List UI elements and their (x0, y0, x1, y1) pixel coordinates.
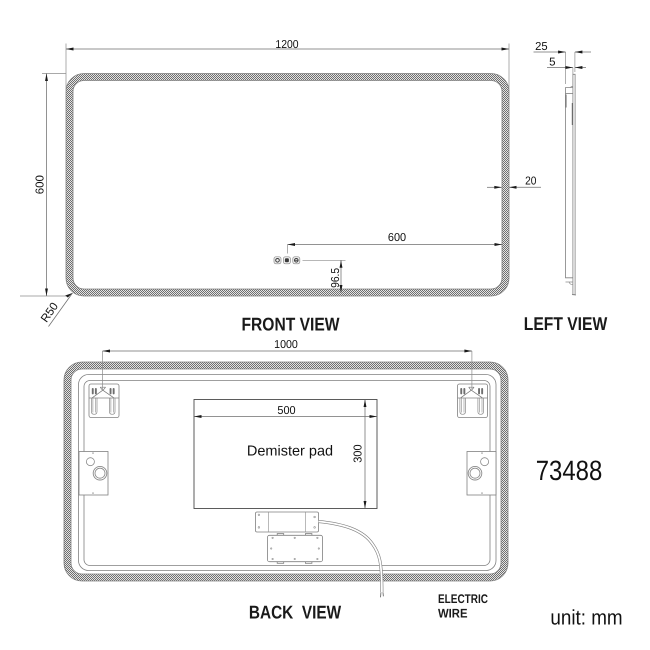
svg-text:LEFT VIEW: LEFT VIEW (524, 313, 608, 334)
svg-text:25: 25 (535, 41, 548, 53)
svg-text:5: 5 (549, 56, 555, 68)
svg-text:600: 600 (35, 175, 47, 194)
svg-text:300: 300 (353, 445, 365, 463)
svg-text:ELECTRIC: ELECTRIC (438, 592, 488, 606)
svg-text:73488: 73488 (536, 455, 603, 486)
svg-text:600: 600 (388, 232, 406, 244)
svg-text:1200: 1200 (275, 39, 298, 51)
svg-text:20: 20 (525, 176, 536, 188)
svg-text:Demister pad: Demister pad (247, 444, 333, 460)
svg-text:500: 500 (277, 405, 295, 417)
svg-text:1000: 1000 (274, 339, 298, 351)
svg-text:96.5: 96.5 (330, 268, 342, 288)
svg-text:FRONT VIEW: FRONT VIEW (242, 314, 340, 335)
svg-text:BACK VIEW: BACK VIEW (249, 602, 342, 623)
svg-text:WIRE: WIRE (438, 606, 468, 620)
svg-text:unit: mm: unit: mm (550, 607, 622, 630)
